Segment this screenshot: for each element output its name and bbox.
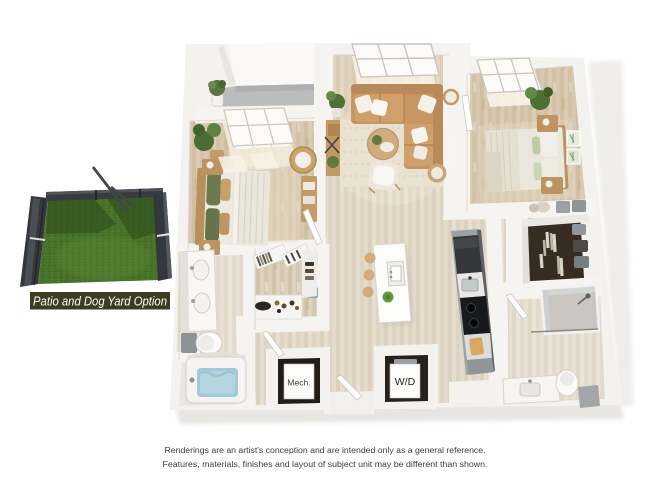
svg-text:Patio and Dog Yard Option: Patio and Dog Yard Option bbox=[33, 294, 167, 309]
svg-text:Mech.: Mech. bbox=[287, 378, 310, 388]
svg-text:Features, materials, finishes: Features, materials, finishes and layout… bbox=[163, 459, 488, 469]
svg-text:W/D: W/D bbox=[395, 376, 416, 388]
svg-text:Renderings are an artist's con: Renderings are an artist's conception an… bbox=[165, 445, 486, 455]
